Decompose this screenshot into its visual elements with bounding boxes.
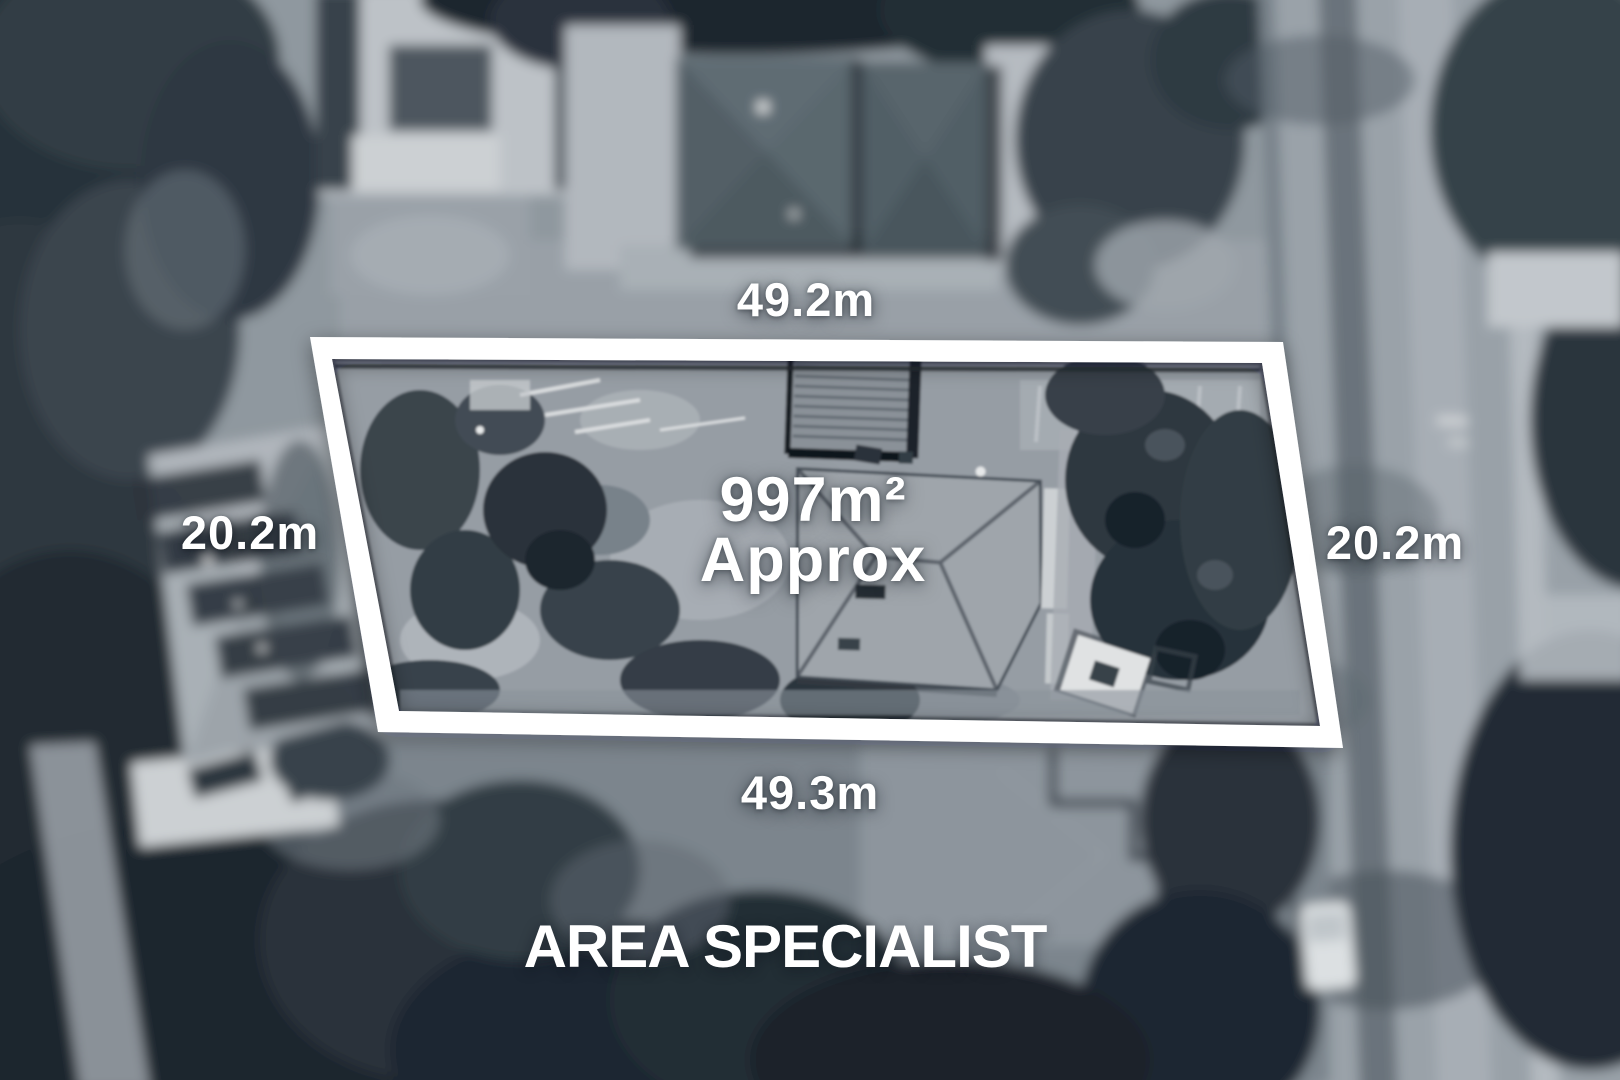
boundary-width-left: 20.2m (181, 505, 319, 560)
bottom-neighbourhood (0, 710, 1357, 1080)
boundary-length-bottom: 49.3m (741, 765, 879, 820)
lot-area-qualifier: Approx (700, 530, 927, 590)
aerial-photo: 49.2m 49.3m 20.2m 20.2m 997m² Approx ARE… (0, 0, 1620, 1080)
brand-logo: AREA SPECIALIST (524, 912, 1047, 981)
parked-van (1292, 896, 1357, 996)
boundary-width-right: 20.2m (1326, 515, 1464, 570)
boundary-length-top: 49.2m (737, 272, 875, 327)
lot-area-value: 997m² (700, 470, 927, 530)
lot-area-label: 997m² Approx (700, 470, 927, 590)
